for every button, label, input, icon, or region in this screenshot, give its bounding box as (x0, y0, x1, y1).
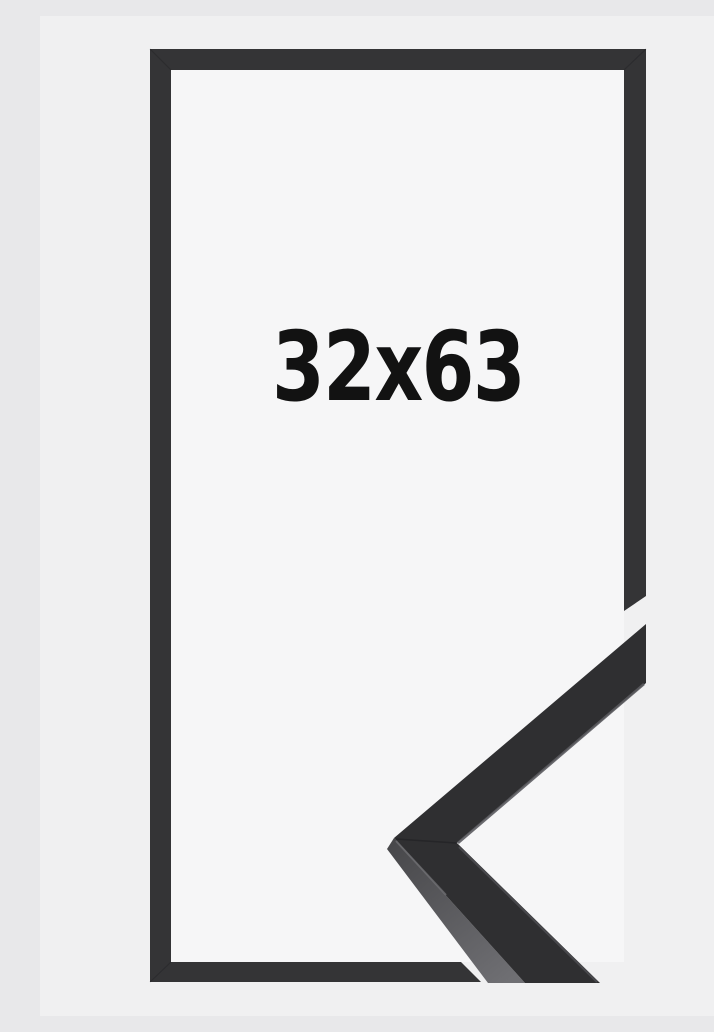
size-label: 32x63 (272, 311, 524, 423)
product-image: 32x63 (40, 16, 714, 1016)
frame-interior (171, 70, 624, 962)
